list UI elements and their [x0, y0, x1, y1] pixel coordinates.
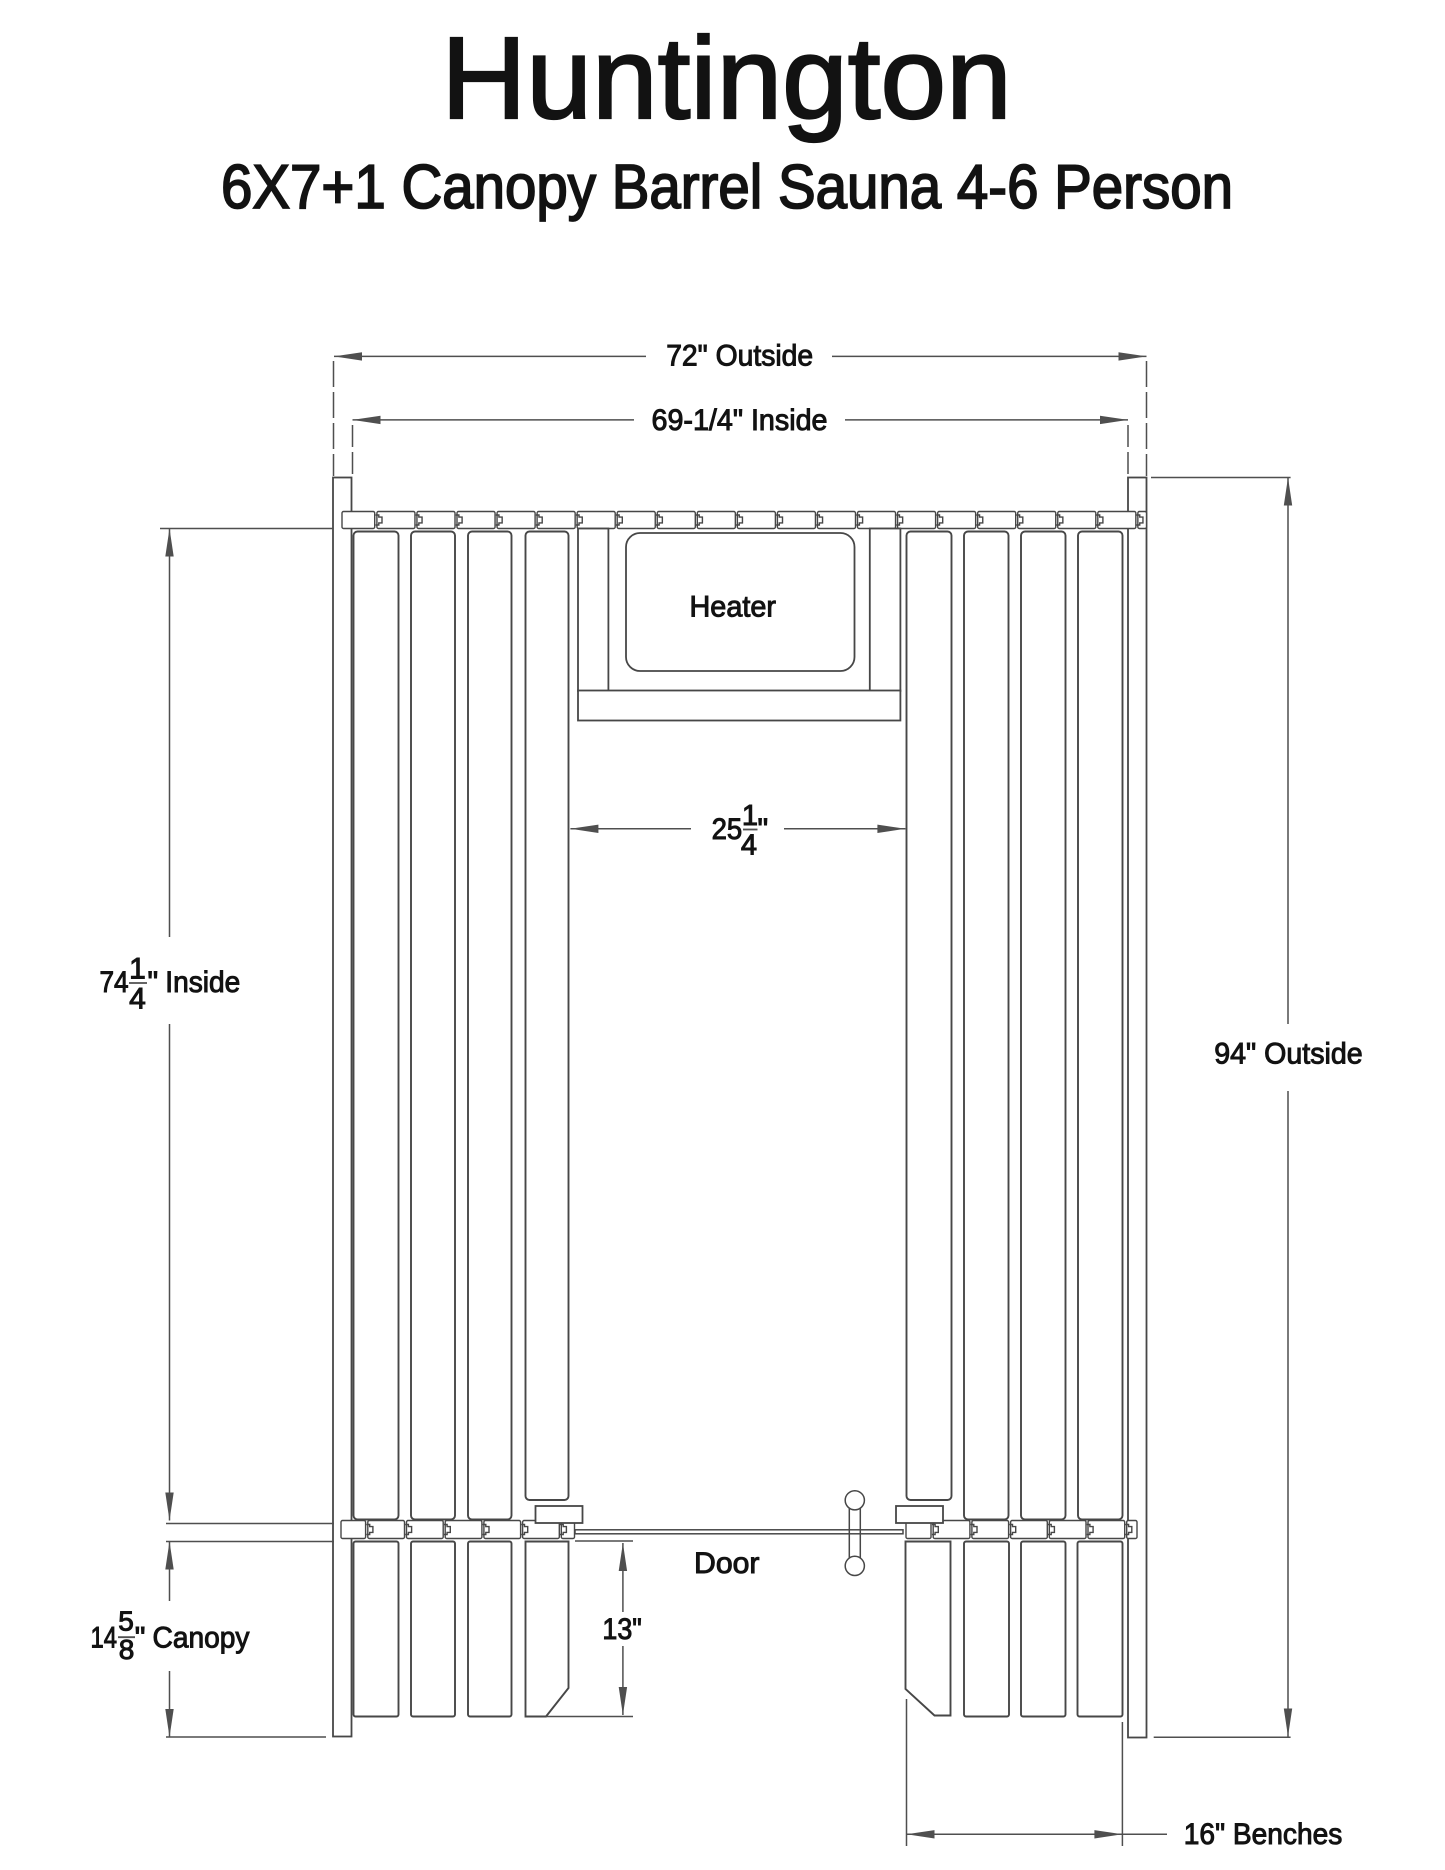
svg-text:Huntington: Huntington: [441, 13, 1012, 143]
svg-text:Heater: Heater: [690, 591, 777, 624]
svg-text:13": 13": [602, 1613, 641, 1646]
svg-text:14: 14: [91, 1621, 118, 1654]
svg-text:25: 25: [712, 813, 743, 846]
svg-text:": ": [148, 966, 159, 999]
svg-text:4: 4: [129, 983, 146, 1016]
svg-text:Canopy: Canopy: [153, 1621, 250, 1654]
svg-text:1: 1: [129, 953, 146, 986]
svg-text:69-1/4" Inside: 69-1/4" Inside: [652, 404, 828, 437]
svg-text:": ": [135, 1621, 146, 1654]
svg-text:94" Outside: 94" Outside: [1214, 1038, 1363, 1071]
svg-text:1: 1: [742, 800, 758, 832]
svg-text:6X7+1 Canopy Barrel Sauna 4-6: 6X7+1 Canopy Barrel Sauna 4-6 Person: [221, 153, 1233, 222]
svg-text:": ": [758, 813, 769, 846]
svg-text:72" Outside: 72" Outside: [666, 339, 813, 372]
svg-text:4: 4: [741, 830, 757, 862]
svg-text:5: 5: [118, 1606, 134, 1637]
svg-text:16" Benches: 16" Benches: [1184, 1818, 1343, 1851]
svg-text:8: 8: [119, 1634, 135, 1665]
svg-text:Inside: Inside: [165, 966, 240, 999]
svg-text:Door: Door: [694, 1547, 760, 1580]
svg-text:74: 74: [100, 966, 129, 999]
